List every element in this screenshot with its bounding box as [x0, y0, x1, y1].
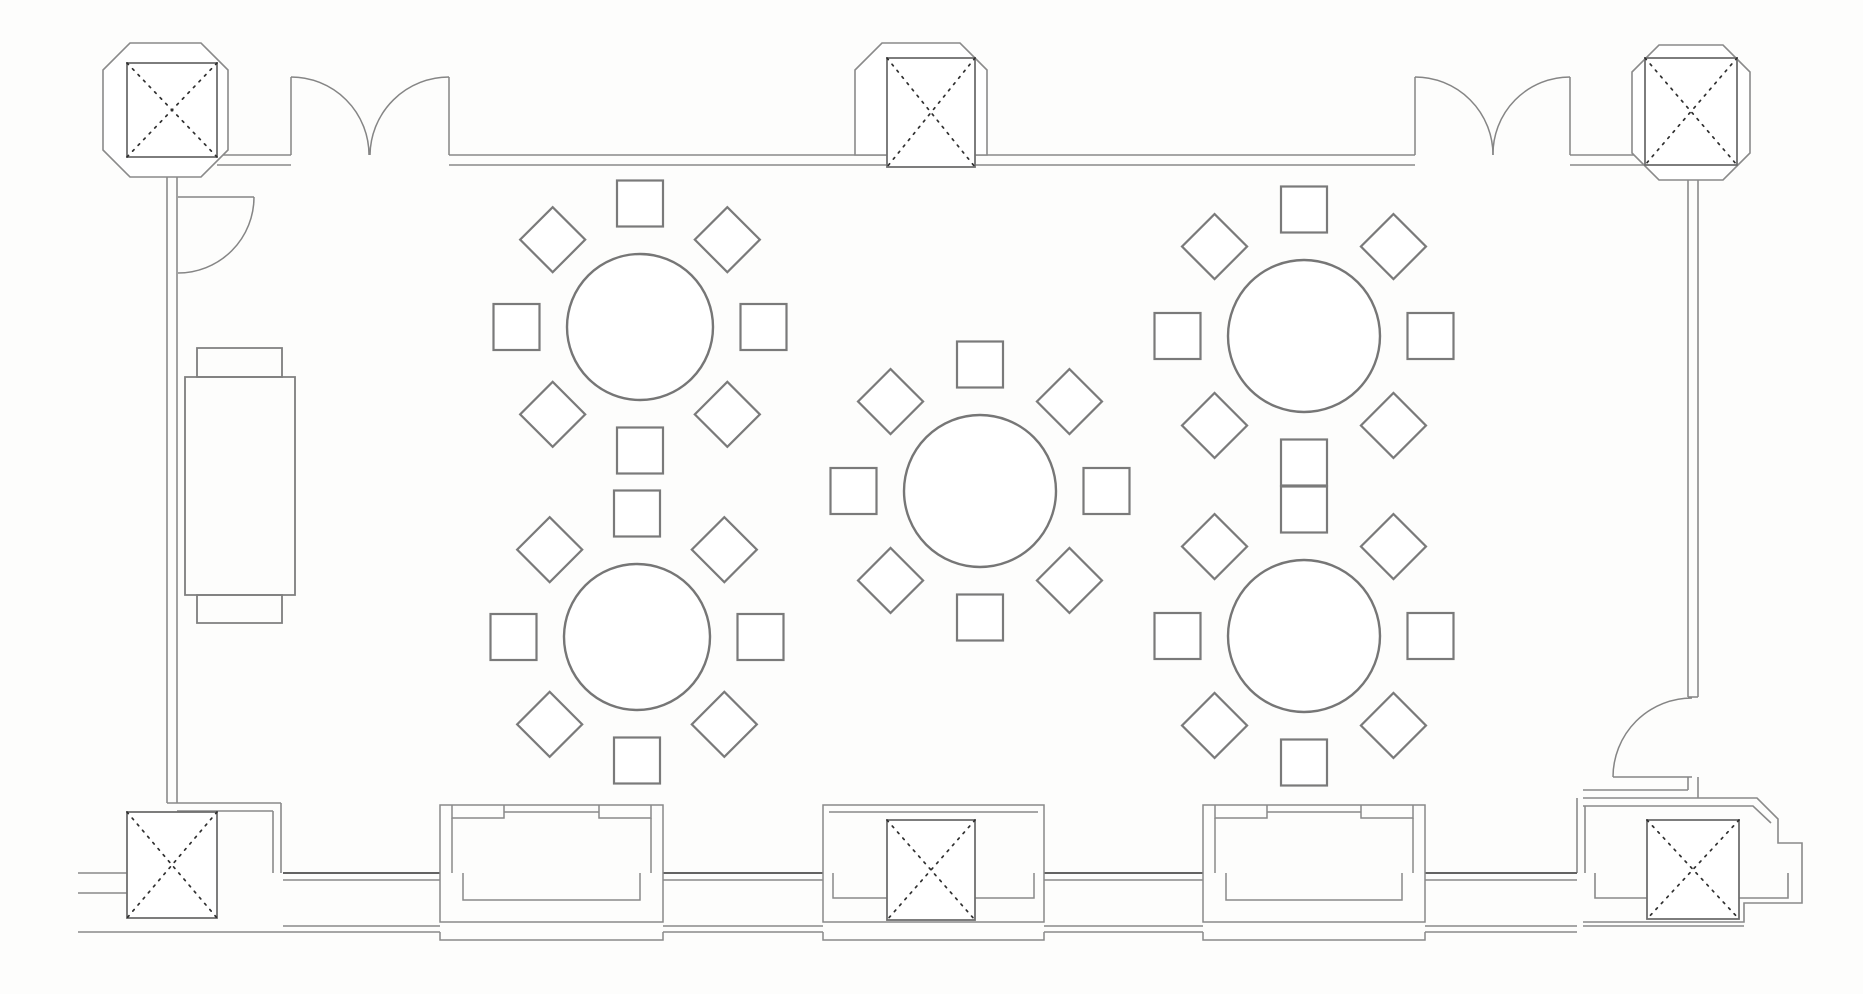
door-swing-arc [1493, 77, 1570, 155]
chair [1182, 693, 1247, 758]
floorplan-svg [0, 0, 1863, 994]
column-square [887, 58, 975, 167]
door-swing-arc [291, 77, 369, 155]
chair [1037, 548, 1102, 613]
table-2 [1155, 187, 1454, 486]
chair [517, 517, 582, 582]
column-square [1647, 820, 1739, 919]
buffet-table [185, 348, 295, 623]
bay-reveal [975, 873, 1034, 898]
chair [692, 692, 757, 757]
chair [695, 382, 760, 447]
chair [1361, 393, 1426, 458]
column-top-middle [855, 43, 987, 167]
floorplan [0, 0, 1863, 994]
chair [858, 548, 923, 613]
wall-line [1739, 873, 1788, 898]
chair [1281, 740, 1327, 786]
column-square [127, 812, 217, 918]
chair [520, 382, 585, 447]
chair [1182, 214, 1247, 279]
chair [1182, 514, 1247, 579]
chair [1084, 468, 1130, 514]
chair [617, 181, 663, 227]
round-table-top [1228, 260, 1380, 412]
chair [831, 468, 877, 514]
bay-under-line [440, 932, 663, 940]
wall-line [1595, 873, 1647, 898]
chair [957, 595, 1003, 641]
column-bottom-left [127, 812, 217, 918]
table-3 [831, 342, 1130, 641]
table-1 [494, 181, 787, 474]
chair [957, 342, 1003, 388]
round-table-top [564, 564, 710, 710]
bay-under-line [1203, 932, 1425, 940]
buffet-outline [197, 348, 282, 377]
chair [491, 614, 537, 660]
door-swing-arc [370, 77, 449, 155]
chair [695, 207, 760, 272]
column-top-right [1632, 45, 1750, 180]
chair [692, 517, 757, 582]
chair [1361, 514, 1426, 579]
window-bay-right [1203, 805, 1425, 940]
single-door-bottom-right [1613, 698, 1692, 777]
chair [614, 738, 660, 784]
chair [1408, 313, 1454, 359]
bay-notch [1215, 805, 1267, 818]
chair [517, 692, 582, 757]
bay-reveal [833, 873, 887, 898]
chair [1155, 313, 1201, 359]
column-top-left [103, 43, 228, 177]
doors [178, 77, 1692, 777]
bay-under-line [823, 932, 1044, 940]
bay-notch [599, 805, 651, 818]
bay-notch [1361, 805, 1413, 818]
bay-outline [440, 805, 663, 922]
column-bottom-middle [887, 820, 975, 920]
chair [617, 428, 663, 474]
door-swing-arc [1415, 77, 1493, 155]
chair [738, 614, 784, 660]
window-sill [463, 873, 640, 900]
double-door-top-left [291, 77, 449, 155]
window-bay-left [440, 805, 663, 940]
chair [1281, 440, 1327, 486]
chair [1361, 214, 1426, 279]
chair [494, 304, 540, 350]
chair [614, 491, 660, 537]
buffet-outline [197, 595, 282, 623]
round-table-top [1228, 560, 1380, 712]
door-swing-arc [1613, 698, 1692, 777]
chair [858, 369, 923, 434]
buffet-outline [185, 377, 295, 595]
chair [1281, 487, 1327, 533]
round-table-top [904, 415, 1056, 567]
chair [741, 304, 787, 350]
door-swing-arc [178, 197, 254, 273]
double-door-top-right [1415, 77, 1570, 155]
single-door-left [178, 197, 254, 273]
chair [1182, 393, 1247, 458]
dining-tables [491, 181, 1454, 786]
window-sill [1226, 873, 1402, 900]
chair [1155, 613, 1201, 659]
chair [1361, 693, 1426, 758]
bay-outline [1203, 805, 1425, 922]
bay-notch [452, 805, 504, 818]
table-4 [491, 491, 784, 784]
chair [1037, 369, 1102, 434]
column-bottom-right [1647, 820, 1739, 919]
table-5 [1155, 487, 1454, 786]
chair [520, 207, 585, 272]
chair [1408, 613, 1454, 659]
chair [1281, 187, 1327, 233]
round-table-top [567, 254, 713, 400]
